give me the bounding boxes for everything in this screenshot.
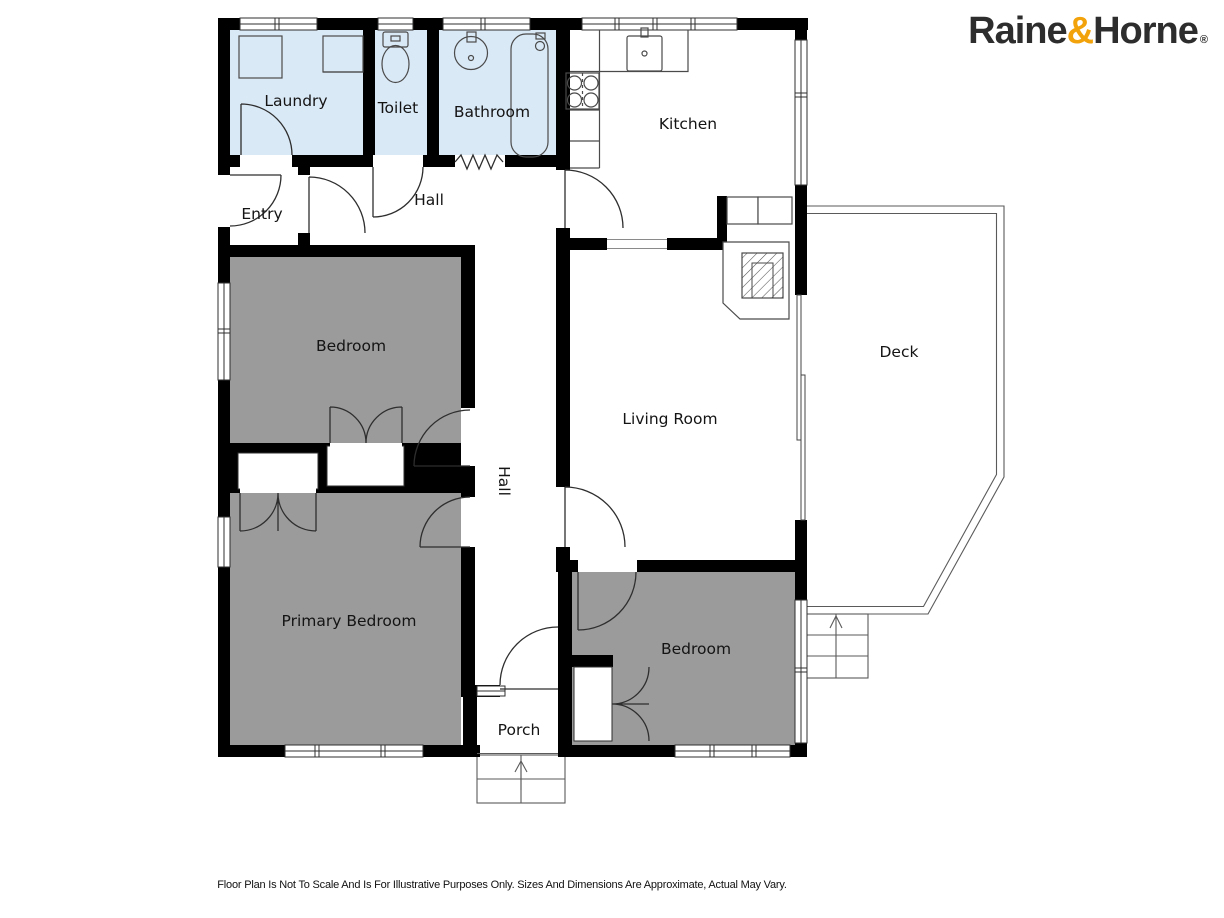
wall-bedroom-front-north <box>230 245 473 257</box>
window-kitchen-east <box>795 40 807 185</box>
label-porch: Porch <box>498 721 541 739</box>
label-primary-bedroom: Primary Bedroom <box>282 612 417 630</box>
opening-kitchen-door <box>556 170 570 228</box>
wall-porch-west <box>463 685 477 757</box>
wall-bedroom-rear-west <box>558 560 572 757</box>
window-bedroom-rear-east <box>795 600 807 743</box>
opening-living-door <box>556 487 570 547</box>
closet-primary-doorway <box>240 486 316 493</box>
disclaimer-text: Floor Plan Is Not To Scale And Is For Il… <box>217 879 786 891</box>
deck-stairs <box>805 614 868 678</box>
label-living-room: Living Room <box>622 410 717 428</box>
opening-bedroom-front-door <box>461 408 475 466</box>
deck-inner-edge <box>805 214 997 607</box>
label-kitchen: Kitchen <box>659 115 717 133</box>
window-bedroom-rear-south <box>675 745 790 757</box>
wall-left <box>218 18 230 757</box>
wall-laundry-toilet <box>363 18 375 167</box>
wardrobe-bedroom-rear <box>574 667 612 741</box>
closet-primary <box>238 453 318 489</box>
label-bathroom: Bathroom <box>454 103 530 121</box>
opening-porch-door <box>500 685 558 697</box>
opening-entry-hall <box>298 175 310 233</box>
window-porch-north <box>477 686 505 696</box>
room-fill-bathroom <box>439 30 556 155</box>
fireplace <box>723 242 789 319</box>
wall-toilet-bathroom <box>427 18 439 167</box>
wall-wardrobe-stub <box>572 655 613 667</box>
slider-panel-1 <box>797 295 801 440</box>
window-bedroom-front-west <box>218 283 230 380</box>
room-fill-toilet <box>375 30 427 155</box>
label-bedroom-rear: Bedroom <box>661 640 731 658</box>
wall-fireplace-stub <box>717 196 727 242</box>
sliding-door-living-deck <box>795 295 807 520</box>
floor-plan-page: Raine&Horne® <box>0 0 1224 918</box>
slider-panel-2 <box>801 375 805 520</box>
window-kitchen-north <box>582 18 737 30</box>
label-laundry: Laundry <box>264 92 327 110</box>
closet-bedroom-front <box>327 446 404 486</box>
window-bathroom-north <box>443 18 530 30</box>
deck-outline <box>805 206 1004 614</box>
deck-step-lines <box>805 614 868 678</box>
label-hall-upper: Hall <box>414 191 444 209</box>
porch-stairs-up-arrow <box>515 761 527 790</box>
floor-plan-drawing: Laundry Toilet Bathroom Kitchen Entry Ha… <box>0 0 1224 918</box>
window-primary-west <box>218 517 230 567</box>
opening-primary-door <box>461 497 475 547</box>
porch-stairs <box>477 755 565 803</box>
opening-bedroom-rear-door <box>578 560 637 572</box>
opening-toilet-door <box>373 155 423 167</box>
window-laundry-north <box>240 18 317 30</box>
label-hall-lower: Hall <box>495 466 513 496</box>
label-deck: Deck <box>880 343 919 361</box>
closet-bedroom-front-doorway <box>330 443 402 448</box>
label-entry: Entry <box>241 205 282 223</box>
deck-outer-edge <box>805 206 1004 614</box>
opening-front-door <box>218 175 230 227</box>
opening-laundry-door <box>240 155 292 167</box>
window-primary-south <box>285 745 423 757</box>
label-toilet: Toilet <box>377 99 419 117</box>
window-toilet-north <box>378 18 413 30</box>
fireplace-firebox <box>742 253 783 298</box>
kitchen-bench-east <box>727 197 792 224</box>
label-bedroom-front: Bedroom <box>316 337 386 355</box>
